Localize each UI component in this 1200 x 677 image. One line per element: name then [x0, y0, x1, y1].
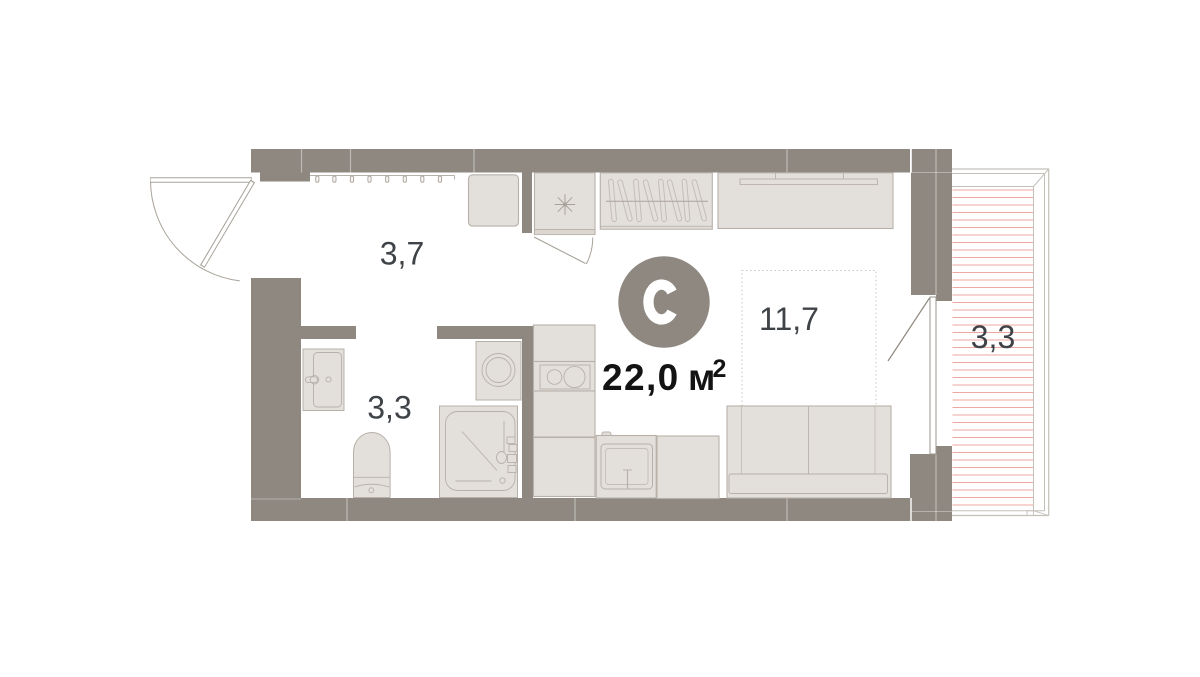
- svg-text:11,7: 11,7: [759, 301, 819, 337]
- svg-text:3,3: 3,3: [367, 390, 411, 426]
- svg-text:22,0: 22,0: [602, 357, 680, 398]
- svg-text:2: 2: [713, 355, 727, 383]
- svg-text:3,3: 3,3: [971, 319, 1015, 355]
- svg-text:м: м: [688, 357, 715, 398]
- svg-text:3,7: 3,7: [380, 236, 424, 272]
